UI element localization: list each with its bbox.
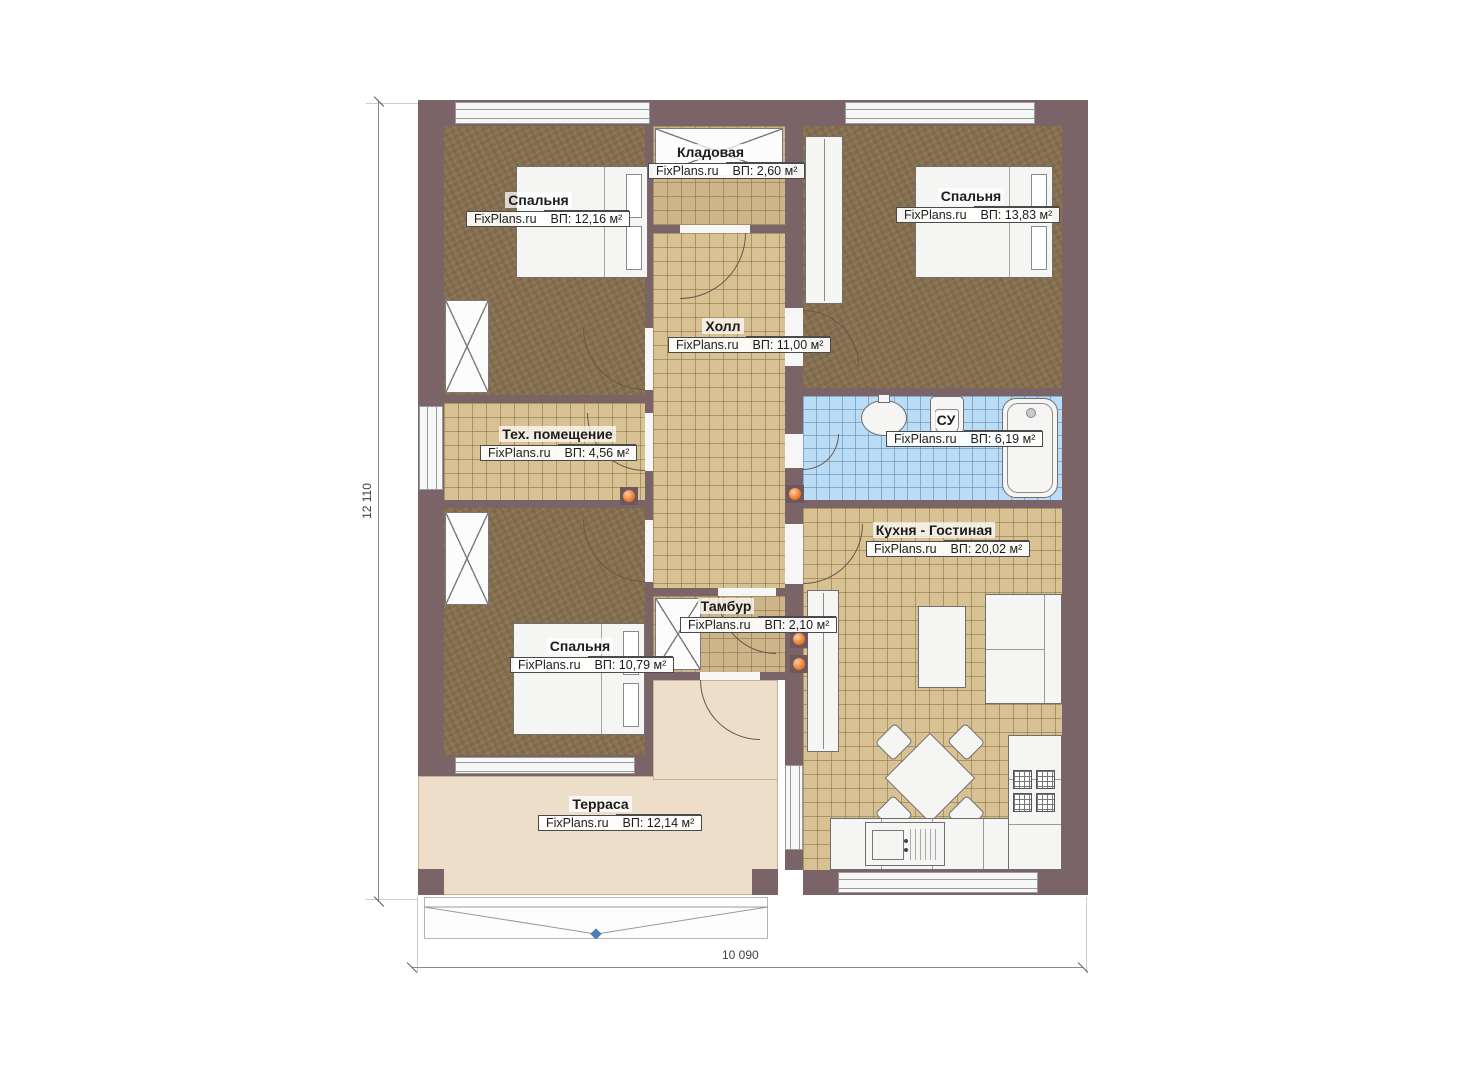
wardrobe-bedroom-2 (805, 136, 843, 304)
room-area: ВП: 13,83 м² (974, 206, 1060, 223)
radiator-dot (790, 655, 808, 673)
dimension-tick (374, 896, 385, 907)
label-tech-room: Тех. помещение FixPlans.ruВП: 4,56 м² (480, 426, 635, 462)
dimension-value-vertical: 12 110 (360, 483, 374, 519)
room-area: ВП: 12,14 м² (616, 814, 702, 831)
cabinet-kitchen-tall (807, 590, 839, 752)
room-area: ВП: 2,10 м² (758, 616, 837, 633)
wall-right (1062, 100, 1088, 895)
dimension-line-vertical (378, 101, 379, 902)
door-kitchen (785, 524, 803, 584)
room-name: Терраса (569, 796, 631, 812)
extension-line (417, 897, 418, 973)
room-name: Кухня - Гостиная (873, 522, 996, 538)
label-terrace: Терраса FixPlans.ruВП: 12,14 м² (538, 796, 663, 832)
room-area: ВП: 6,19 м² (964, 430, 1043, 447)
dimension-tick (374, 96, 385, 107)
door-bedroom-1 (645, 328, 653, 390)
dimension-line-horizontal (412, 967, 1083, 968)
stove (1010, 768, 1060, 816)
door-vestibule (718, 588, 776, 596)
room-area: ВП: 11,00 м² (746, 336, 831, 353)
entrance-steps (424, 897, 768, 939)
label-vestibule: Тамбур FixPlans.ruВП: 2,10 м² (680, 598, 772, 634)
kitchen-sink-unit (865, 822, 945, 866)
brand-watermark: FixPlans.ru (897, 207, 974, 223)
floor-plan: Спальня FixPlans.ruВП: 12,16 м² Кладовая… (418, 100, 1088, 895)
window-bedroom-2 (845, 102, 1035, 124)
room-area: ВП: 20,02 м² (944, 540, 1030, 557)
sink-tap (878, 394, 890, 403)
brand-watermark: FixPlans.ru (681, 617, 758, 633)
room-area: ВП: 12,16 м² (544, 210, 630, 227)
door-entrance (700, 672, 760, 680)
entry-marker-icon (590, 928, 601, 939)
window-tech-room (419, 406, 443, 490)
door-bathroom (785, 434, 803, 468)
dimension-value-horizontal: 10 090 (722, 948, 759, 962)
label-hall: Холл FixPlans.ruВП: 11,00 м² (668, 318, 778, 354)
coffee-table (918, 606, 966, 688)
steps-drawing (424, 897, 768, 939)
wardrobe-bedroom-3 (445, 512, 489, 605)
window-terrace-kitchen (785, 765, 803, 850)
wall-bedroom2-bathroom (803, 388, 1062, 396)
label-bedroom-1: Спальня FixPlans.ruВП: 12,16 м² (466, 192, 611, 228)
brand-watermark: FixPlans.ru (467, 211, 544, 227)
brand-watermark: FixPlans.ru (887, 431, 964, 447)
radiator-dot (786, 485, 804, 503)
brand-watermark: FixPlans.ru (539, 815, 616, 831)
radiator-dot (620, 487, 638, 505)
room-name: Холл (702, 318, 743, 334)
extension-line (366, 103, 418, 104)
window-bedroom-3 (455, 757, 635, 774)
room-area: ВП: 2,60 м² (726, 162, 805, 179)
label-bathroom: СУ FixPlans.ruВП: 6,19 м² (886, 412, 1006, 448)
terrace-post-right (752, 869, 778, 895)
window-kitchen-bottom (838, 872, 1038, 893)
room-name: Кладовая (674, 144, 747, 160)
brand-watermark: FixPlans.ru (867, 541, 944, 557)
label-bedroom-2: Спальня FixPlans.ruВП: 13,83 м² (896, 188, 1046, 224)
room-area: ВП: 4,56 м² (558, 444, 637, 461)
bathtub (1002, 398, 1058, 498)
brand-watermark: FixPlans.ru (511, 657, 588, 673)
wardrobe-bedroom-1 (445, 300, 489, 393)
door-tech-room (645, 413, 653, 471)
window-bedroom-1 (455, 102, 650, 124)
brand-watermark: FixPlans.ru (649, 163, 726, 179)
door-storage (680, 225, 750, 233)
extension-line (1086, 897, 1087, 973)
floor-plan-page: Спальня FixPlans.ruВП: 12,16 м² Кладовая… (0, 0, 1474, 1080)
room-name: Тамбур (698, 598, 755, 614)
wall-bathroom-kitchen (803, 500, 1062, 508)
label-bedroom-3: Спальня FixPlans.ruВП: 10,79 м² (510, 638, 650, 674)
sofa (985, 594, 1062, 704)
room-name: Тех. помещение (499, 426, 615, 442)
wall-bedroom1-tech (418, 395, 653, 403)
label-storage: Кладовая FixPlans.ruВП: 2,60 м² (648, 144, 773, 180)
room-name: Спальня (938, 188, 1004, 204)
brand-watermark: FixPlans.ru (481, 445, 558, 461)
terrace-post-left (418, 869, 444, 895)
door-bedroom-3 (645, 520, 653, 582)
room-hall-floor (653, 233, 785, 588)
label-kitchen-living: Кухня - Гостиная FixPlans.ruВП: 20,02 м² (866, 522, 1002, 558)
brand-watermark: FixPlans.ru (669, 337, 746, 353)
terrace-floor (418, 776, 778, 895)
room-name: Спальня (547, 638, 613, 654)
room-area: ВП: 10,79 м² (588, 656, 674, 673)
room-name: СУ (934, 412, 959, 428)
wall-tech-bedroom3 (418, 500, 653, 508)
room-name: Спальня (505, 192, 571, 208)
extension-line (366, 899, 418, 900)
